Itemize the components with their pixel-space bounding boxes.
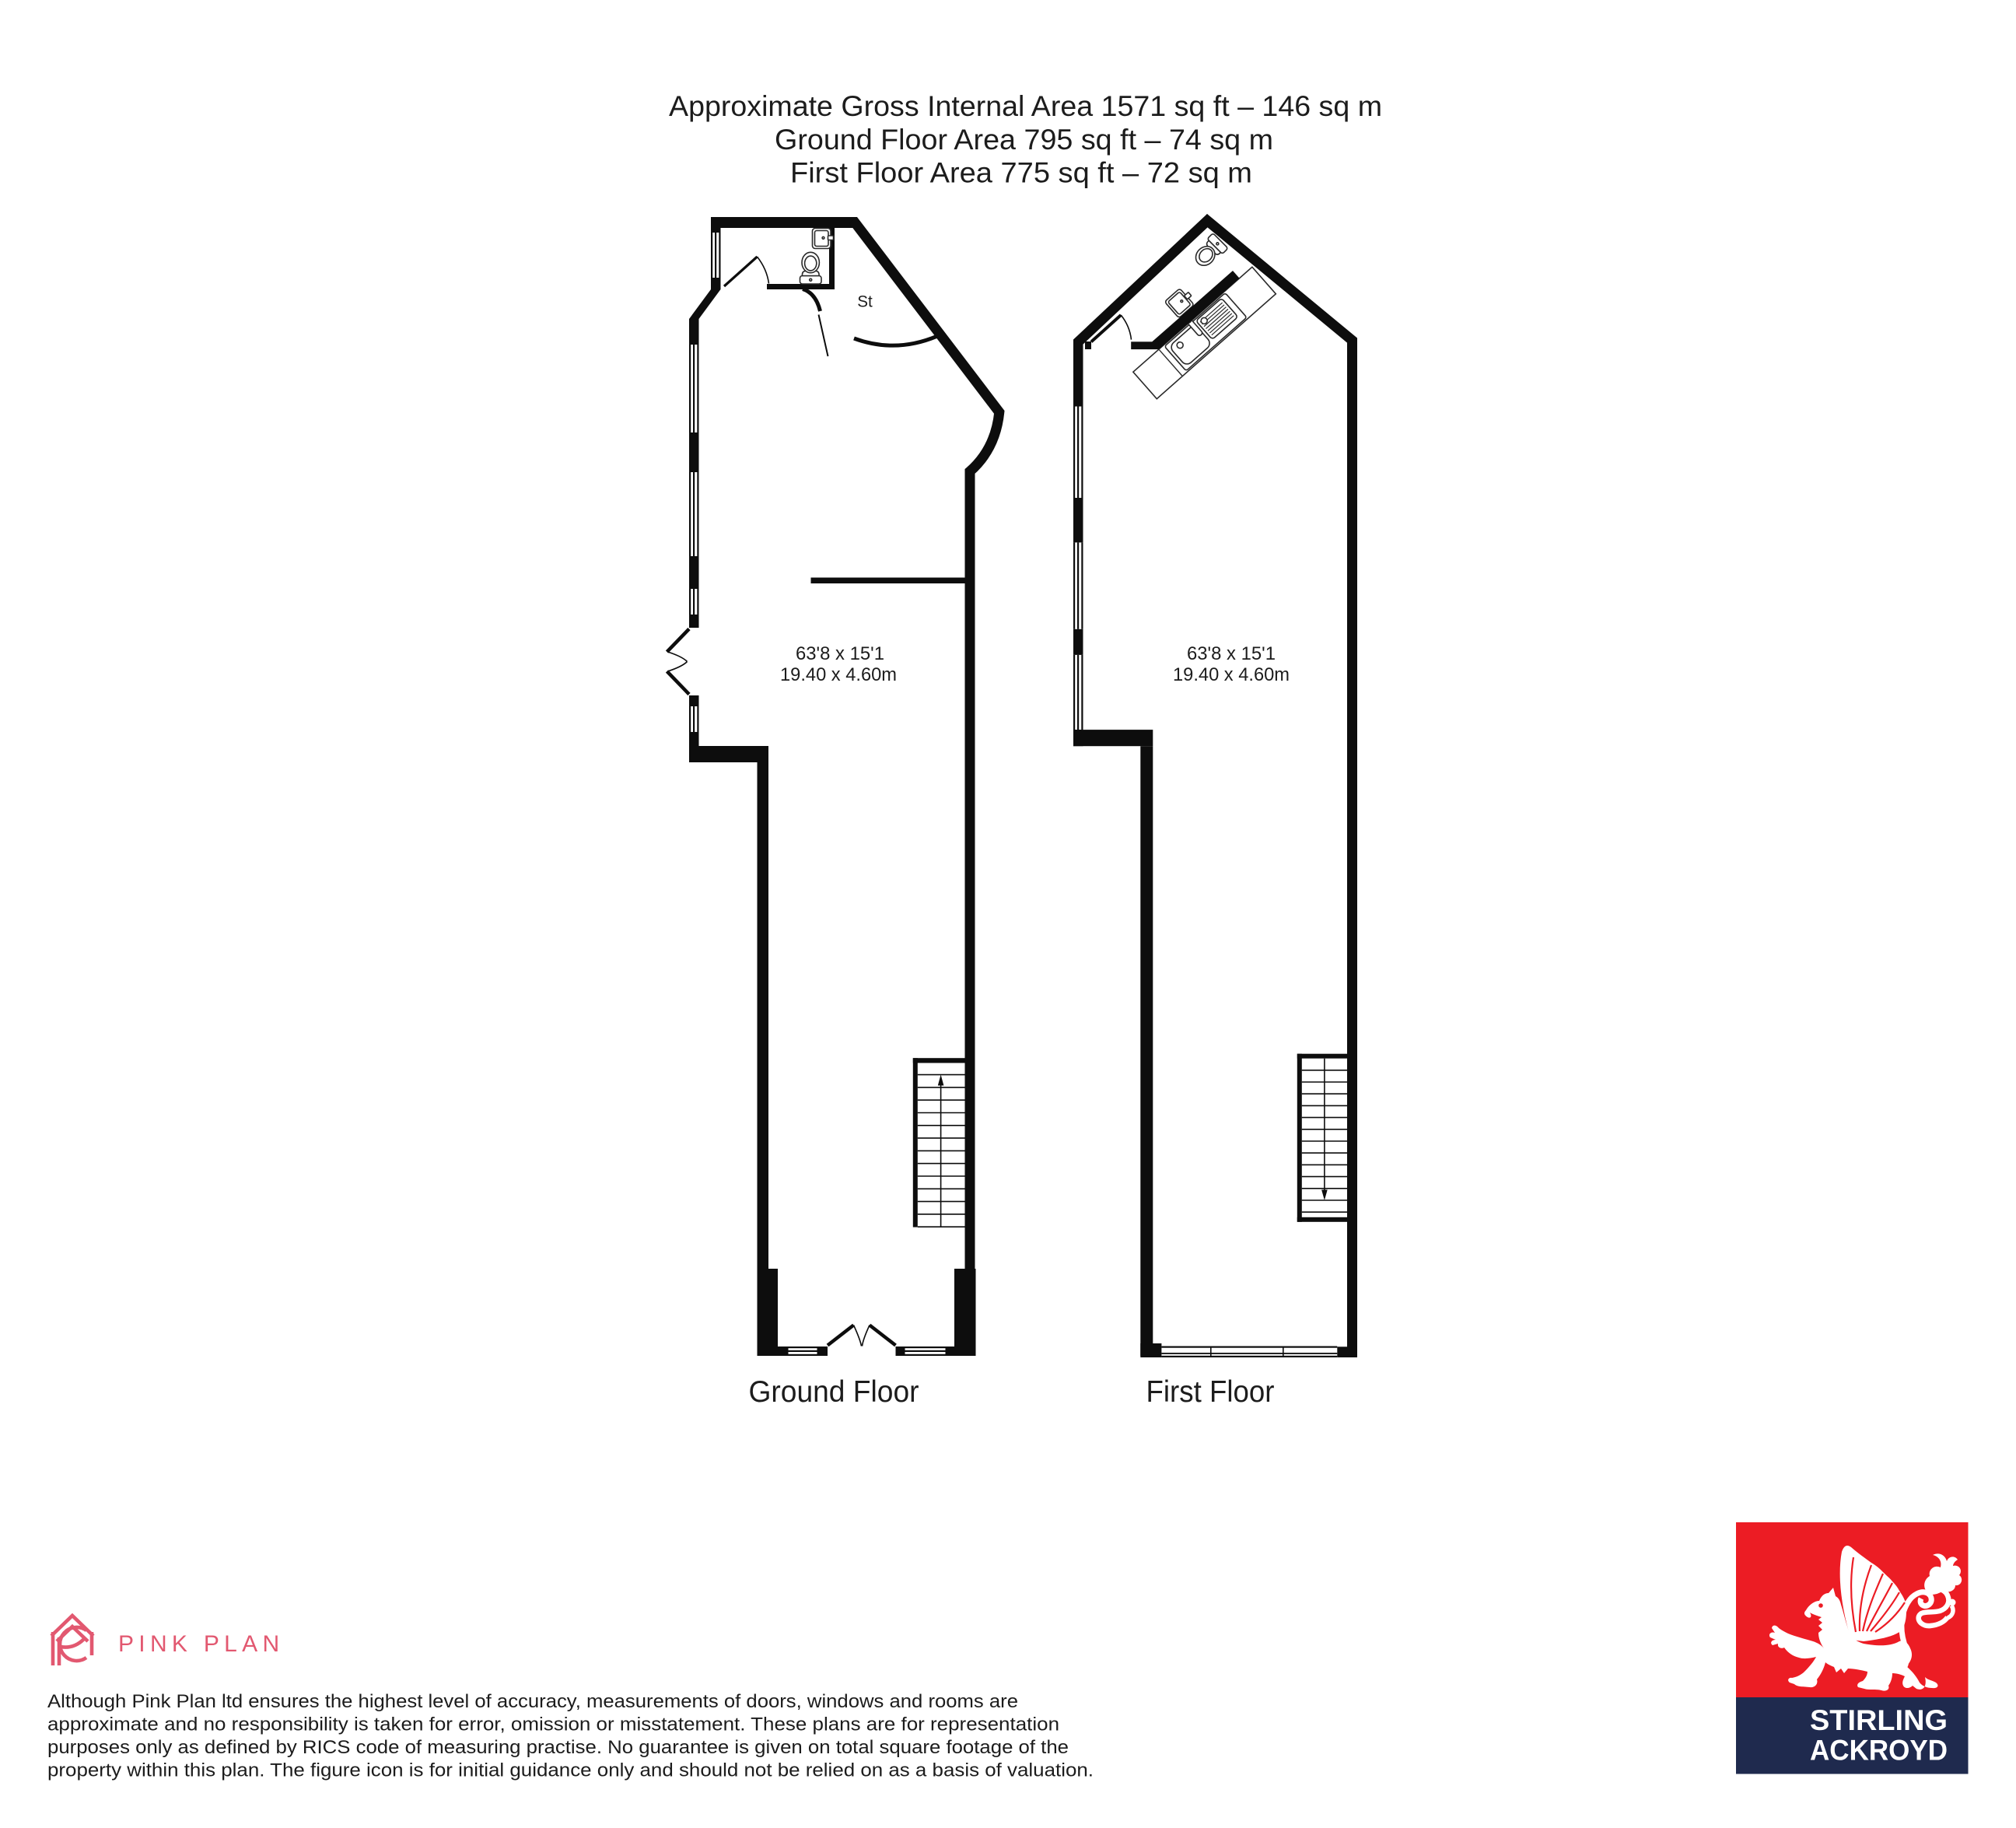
svg-text:Ground Floor: Ground Floor — [749, 1375, 919, 1409]
svg-text:First Floor Area 775 sq ft – 7: First Floor Area 775 sq ft – 72 sq m — [790, 157, 1252, 189]
svg-text:63'8 x 15'1: 63'8 x 15'1 — [796, 643, 884, 664]
svg-text:First Floor: First Floor — [1146, 1375, 1275, 1409]
svg-text:property within this plan. The: property within this plan. The figure ic… — [47, 1760, 1094, 1781]
svg-text:Approximate Gross Internal Are: Approximate Gross Internal Area 1571 sq … — [669, 90, 1382, 122]
svg-text:PINK PLAN: PINK PLAN — [118, 1631, 284, 1657]
svg-text:STIRLING: STIRLING — [1810, 1704, 1948, 1736]
svg-text:19.40 x 4.60m: 19.40 x 4.60m — [780, 664, 897, 685]
svg-text:Ground Floor Area 795 sq ft –: Ground Floor Area 795 sq ft – 74 sq m — [775, 124, 1273, 156]
svg-text:19.40 x 4.60m: 19.40 x 4.60m — [1173, 664, 1290, 685]
svg-text:ACKROYD: ACKROYD — [1810, 1735, 1948, 1767]
svg-text:63'8 x 15'1: 63'8 x 15'1 — [1187, 643, 1276, 664]
svg-text:Although Pink Plan ltd ensures: Although Pink Plan ltd ensures the highe… — [47, 1691, 1018, 1712]
svg-text:approximate and no responsibil: approximate and no responsibility is tak… — [47, 1714, 1059, 1735]
svg-text:St: St — [857, 293, 873, 311]
svg-text:purposes only as defined by RI: purposes only as defined by RICS code of… — [47, 1737, 1069, 1758]
